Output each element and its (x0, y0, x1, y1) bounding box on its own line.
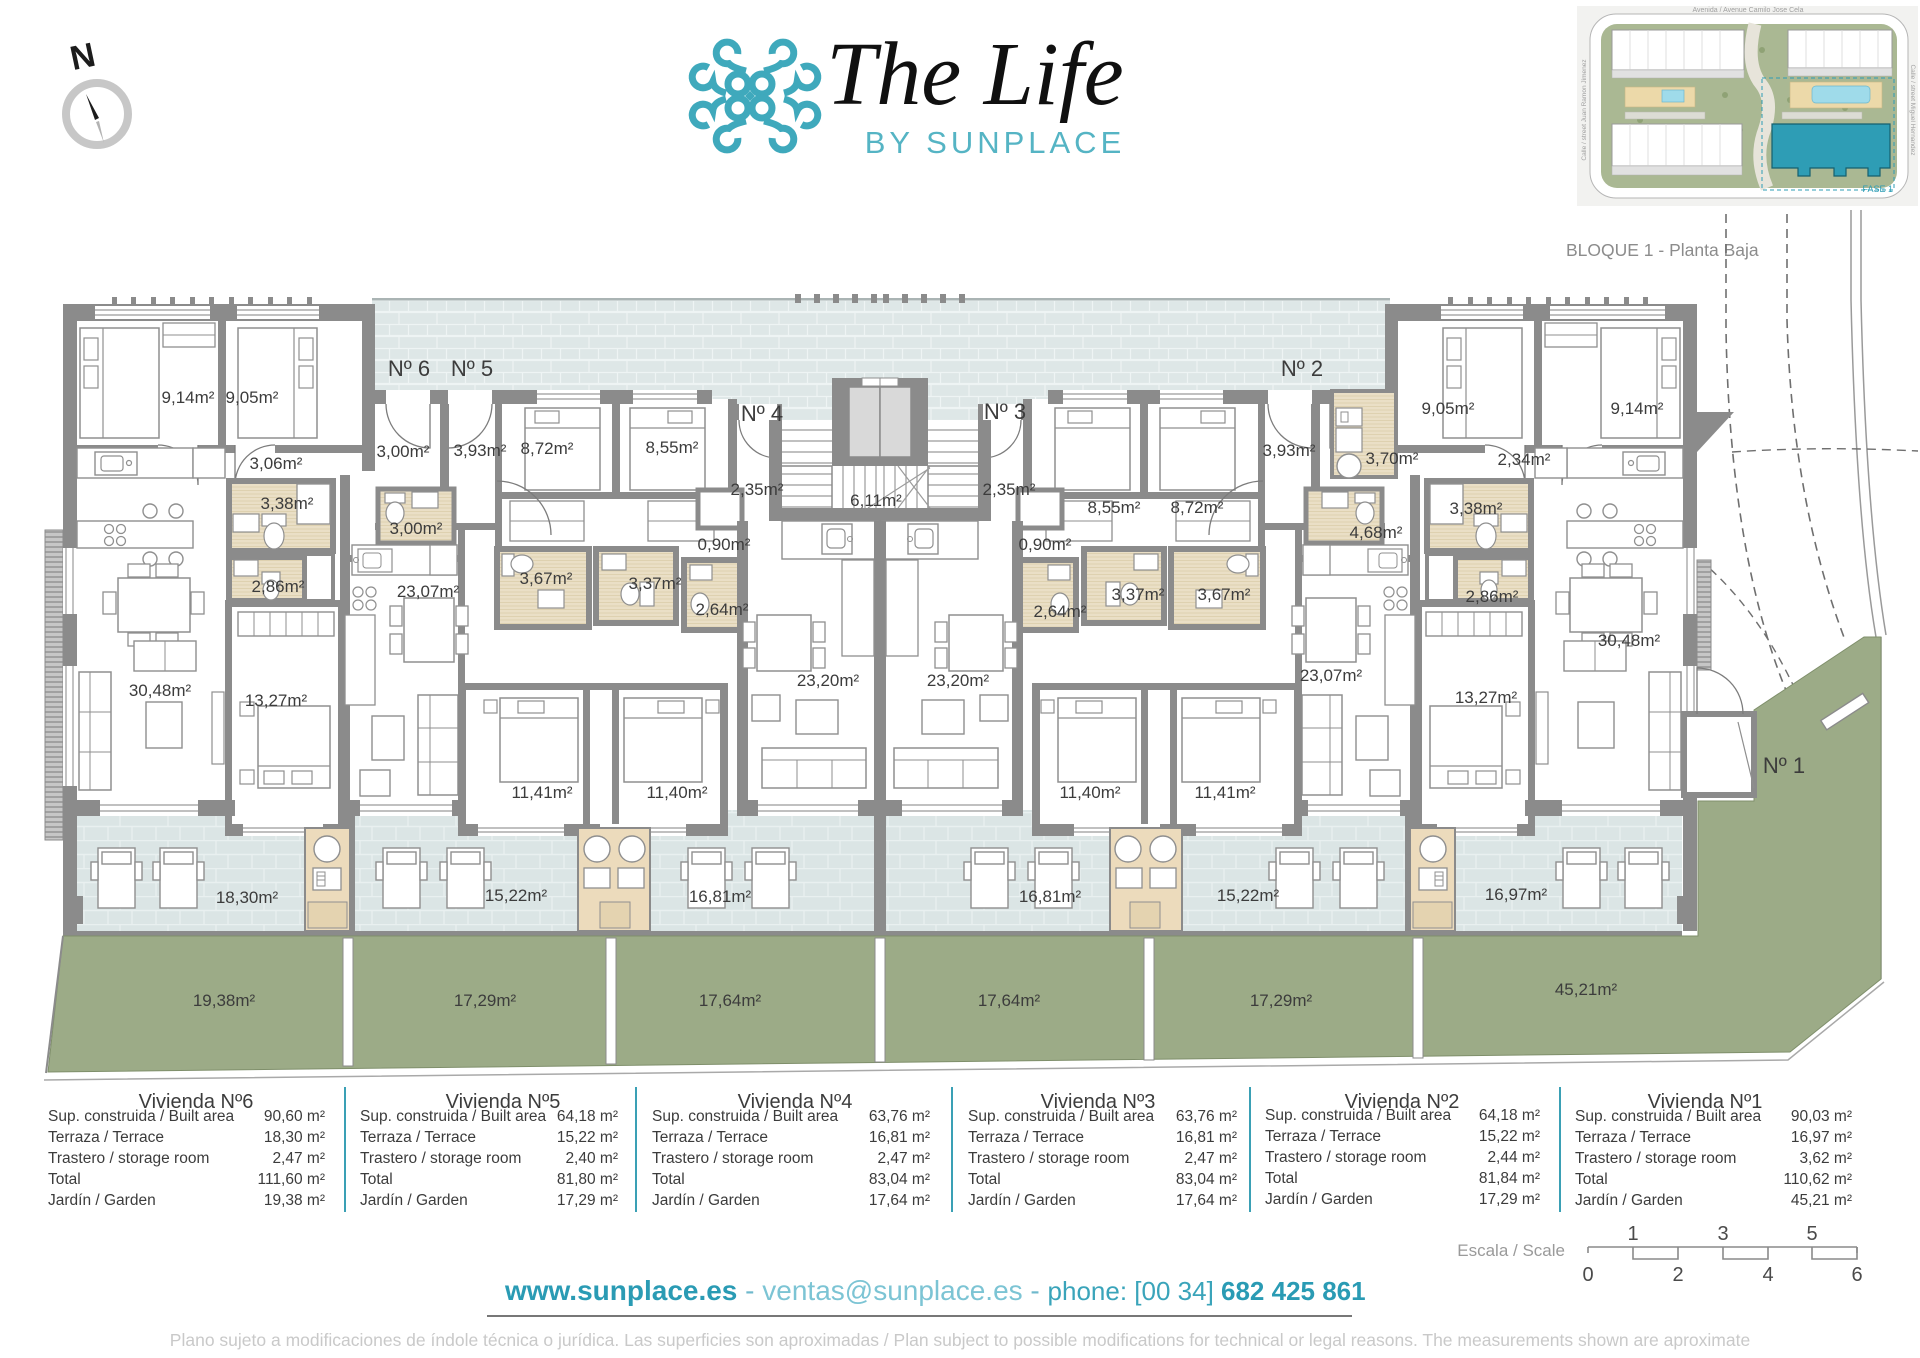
svg-text:6: 6 (1851, 1264, 1862, 1286)
svg-text:90,60 m²: 90,60 m² (264, 1108, 325, 1125)
svg-text:0,90m²: 0,90m² (1019, 535, 1072, 554)
svg-text:11,41m²: 11,41m² (1194, 783, 1255, 802)
svg-text:17,29m²: 17,29m² (1250, 991, 1313, 1010)
svg-text:11,40m²: 11,40m² (646, 783, 707, 802)
svg-text:8,72m²: 8,72m² (1171, 498, 1224, 517)
svg-text:17,29 m²: 17,29 m² (557, 1192, 618, 1209)
svg-text:64,18 m²: 64,18 m² (1479, 1107, 1540, 1124)
svg-text:Sup. construida / Built area: Sup. construida / Built area (1265, 1107, 1451, 1124)
svg-text:15,22m²: 15,22m² (1217, 886, 1280, 905)
svg-text:2,44 m²: 2,44 m² (1487, 1149, 1540, 1166)
svg-text:83,04 m²: 83,04 m² (869, 1171, 930, 1188)
svg-text:16,81m²: 16,81m² (1019, 887, 1082, 906)
svg-text:63,76 m²: 63,76 m² (869, 1108, 930, 1125)
svg-text:4,68m²: 4,68m² (1350, 523, 1403, 542)
svg-text:Escala / Scale: Escala / Scale (1457, 1241, 1565, 1260)
svg-text:16,97m²: 16,97m² (1485, 885, 1548, 904)
svg-text:Terraza / Terrace: Terraza / Terrace (360, 1129, 476, 1146)
svg-text:83,04 m²: 83,04 m² (1176, 1171, 1237, 1188)
svg-text:15,22m²: 15,22m² (485, 886, 548, 905)
svg-text:Jardín / Garden: Jardín / Garden (360, 1192, 468, 1209)
svg-text:Sup. construida / Built area: Sup. construida / Built area (1575, 1108, 1761, 1125)
svg-text:5: 5 (1806, 1223, 1817, 1245)
svg-text:16,81 m²: 16,81 m² (869, 1129, 930, 1146)
svg-text:9,14m²: 9,14m² (1611, 399, 1664, 418)
svg-text:Terraza / Terrace: Terraza / Terrace (652, 1129, 768, 1146)
svg-text:Terraza / Terrace: Terraza / Terrace (1575, 1129, 1691, 1146)
svg-text:2,64m²: 2,64m² (1034, 602, 1087, 621)
svg-text:Nº 2: Nº 2 (1281, 356, 1323, 381)
svg-text:4: 4 (1762, 1264, 1773, 1286)
svg-text:8,55m²: 8,55m² (1088, 498, 1141, 517)
svg-text:17,29m²: 17,29m² (454, 991, 517, 1010)
svg-text:23,20m²: 23,20m² (927, 671, 990, 690)
svg-text:45,21m²: 45,21m² (1555, 980, 1618, 999)
svg-text:81,84 m²: 81,84 m² (1479, 1170, 1540, 1187)
svg-text:2,35m²: 2,35m² (983, 480, 1036, 499)
svg-text:2,40 m²: 2,40 m² (565, 1150, 618, 1167)
svg-text:0: 0 (1582, 1264, 1593, 1286)
svg-text:81,80 m²: 81,80 m² (557, 1171, 618, 1188)
svg-text:23,07m²: 23,07m² (397, 582, 460, 601)
svg-text:Sup. construida / Built area: Sup. construida / Built area (48, 1108, 234, 1125)
svg-text:3,70m²: 3,70m² (1366, 449, 1419, 468)
svg-text:3,00m²: 3,00m² (390, 519, 443, 538)
svg-text:6,11m²: 6,11m² (850, 491, 902, 510)
svg-text:Terraza / Terrace: Terraza / Terrace (968, 1129, 1084, 1146)
svg-text:9,05m²: 9,05m² (1422, 399, 1475, 418)
svg-text:Plano sujeto a modificaciones: Plano sujeto a modificaciones de índole … (170, 1330, 1750, 1350)
svg-text:3,93m²: 3,93m² (1263, 441, 1316, 460)
svg-text:90,03 m²: 90,03 m² (1791, 1108, 1852, 1125)
svg-text:30,48m²: 30,48m² (129, 681, 192, 700)
svg-text:Jardín / Garden: Jardín / Garden (1265, 1191, 1373, 1208)
svg-text:23,07m²: 23,07m² (1300, 666, 1363, 685)
svg-text:3,62 m²: 3,62 m² (1799, 1150, 1852, 1167)
svg-text:110,62 m²: 110,62 m² (1783, 1171, 1852, 1188)
svg-text:2,35m²: 2,35m² (731, 480, 784, 499)
svg-text:2,34m²: 2,34m² (1498, 450, 1551, 469)
svg-text:Trastero / storage room: Trastero / storage room (652, 1150, 813, 1167)
svg-text:2,86m²: 2,86m² (252, 577, 305, 596)
svg-text:Trastero / storage room: Trastero / storage room (48, 1150, 209, 1167)
svg-text:63,76 m²: 63,76 m² (1176, 1108, 1237, 1125)
svg-text:Sup. construida / Built area: Sup. construida / Built area (652, 1108, 838, 1125)
svg-text:13,27m²: 13,27m² (1455, 688, 1518, 707)
svg-text:15,22 m²: 15,22 m² (557, 1129, 618, 1146)
svg-text:3,06m²: 3,06m² (250, 454, 303, 473)
svg-text:3,37m²: 3,37m² (1112, 585, 1165, 604)
svg-text:0,90m²: 0,90m² (698, 535, 751, 554)
svg-text:18,30m²: 18,30m² (216, 888, 279, 907)
svg-text:16,81m²: 16,81m² (689, 887, 752, 906)
svg-text:Trastero / storage room: Trastero / storage room (1575, 1150, 1736, 1167)
svg-text:18,30 m²: 18,30 m² (264, 1129, 325, 1146)
svg-text:Sup. construida / Built area: Sup. construida / Built area (360, 1108, 546, 1125)
svg-text:3,93m²: 3,93m² (454, 441, 507, 460)
svg-text:3,00m²: 3,00m² (377, 442, 430, 461)
svg-text:The Life: The Life (826, 25, 1124, 124)
svg-text:Nº 3: Nº 3 (984, 399, 1026, 424)
svg-text:Total: Total (1265, 1170, 1298, 1187)
svg-text:Terraza / Terrace: Terraza / Terrace (1265, 1128, 1381, 1145)
svg-text:2,64m²: 2,64m² (696, 600, 749, 619)
svg-text:Jardín / Garden: Jardín / Garden (48, 1192, 156, 1209)
svg-text:19,38 m²: 19,38 m² (264, 1192, 325, 1209)
svg-text:Total: Total (968, 1171, 1001, 1188)
svg-text:BY SUNPLACE: BY SUNPLACE (865, 125, 1126, 160)
svg-text:17,29 m²: 17,29 m² (1479, 1191, 1540, 1208)
svg-text:13,27m²: 13,27m² (245, 691, 308, 710)
svg-text:3,67m²: 3,67m² (520, 569, 573, 588)
svg-text:16,81 m²: 16,81 m² (1176, 1129, 1237, 1146)
svg-text:Trastero / storage room: Trastero / storage room (968, 1150, 1129, 1167)
svg-text:3,38m²: 3,38m² (261, 494, 314, 513)
svg-text:Avenida / Avenue Camilo Jose C: Avenida / Avenue Camilo Jose Cela (1692, 7, 1803, 14)
svg-text:Total: Total (48, 1171, 81, 1188)
svg-text:1: 1 (1627, 1223, 1638, 1245)
svg-text:11,40m²: 11,40m² (1059, 783, 1120, 802)
svg-text:Jardín / Garden: Jardín / Garden (652, 1192, 760, 1209)
svg-text:17,64 m²: 17,64 m² (1176, 1192, 1237, 1209)
svg-text:Trastero / storage room: Trastero / storage room (1265, 1149, 1426, 1166)
svg-text:45,21 m²: 45,21 m² (1791, 1192, 1852, 1209)
svg-text:Calle / street Miguel Hernande: Calle / street Miguel Hernandez (1909, 64, 1916, 155)
svg-text:8,55m²: 8,55m² (646, 438, 699, 457)
svg-text:11,41m²: 11,41m² (511, 783, 572, 802)
svg-text:Terraza / Terrace: Terraza / Terrace (48, 1129, 164, 1146)
svg-text:2: 2 (1672, 1264, 1683, 1286)
svg-text:Jardín / Garden: Jardín / Garden (1575, 1192, 1683, 1209)
svg-text:2,47 m²: 2,47 m² (877, 1150, 930, 1167)
svg-text:15,22 m²: 15,22 m² (1479, 1128, 1540, 1145)
svg-text:3,38m²: 3,38m² (1450, 499, 1503, 518)
svg-text:3: 3 (1717, 1223, 1728, 1245)
svg-text:2,86m²: 2,86m² (1466, 587, 1519, 606)
svg-text:FASE 1: FASE 1 (1862, 184, 1893, 194)
svg-text:Nº 1: Nº 1 (1763, 753, 1805, 778)
svg-text:Nº 6: Nº 6 (388, 356, 430, 381)
svg-text:Calle / street Juan Ramon Jime: Calle / street Juan Ramon Jimenez (1581, 59, 1588, 160)
svg-text:Sup. construida / Built area: Sup. construida / Built area (968, 1108, 1154, 1125)
svg-text:9,05m²: 9,05m² (226, 388, 279, 407)
svg-text:64,18 m²: 64,18 m² (557, 1108, 618, 1125)
svg-text:17,64 m²: 17,64 m² (869, 1192, 930, 1209)
svg-text:19,38m²: 19,38m² (193, 991, 256, 1010)
svg-text:BLOQUE 1 - Planta Baja: BLOQUE 1 - Planta Baja (1566, 240, 1759, 260)
svg-text:17,64m²: 17,64m² (978, 991, 1041, 1010)
svg-text:Jardín / Garden: Jardín / Garden (968, 1192, 1076, 1209)
svg-text:16,97 m²: 16,97 m² (1791, 1129, 1852, 1146)
svg-text:23,20m²: 23,20m² (797, 671, 860, 690)
svg-text:Total: Total (360, 1171, 393, 1188)
svg-text:2,47 m²: 2,47 m² (272, 1150, 325, 1167)
svg-text:111,60 m²: 111,60 m² (258, 1171, 326, 1188)
svg-text:www.sunplace.es - ventas@sun: www.sunplace.es - ventas@sunplace.es - p… (504, 1275, 1366, 1306)
svg-text:9,14m²: 9,14m² (162, 388, 215, 407)
svg-text:Nº 4: Nº 4 (741, 401, 783, 426)
svg-text:2,47 m²: 2,47 m² (1184, 1150, 1237, 1167)
svg-text:3,37m²: 3,37m² (629, 574, 682, 593)
svg-text:3,67m²: 3,67m² (1198, 585, 1251, 604)
svg-text:Total: Total (652, 1171, 685, 1188)
svg-text:30,48m²: 30,48m² (1598, 631, 1661, 650)
svg-text:17,64m²: 17,64m² (699, 991, 762, 1010)
svg-text:Trastero / storage room: Trastero / storage room (360, 1150, 521, 1167)
svg-text:8,72m²: 8,72m² (521, 439, 574, 458)
svg-text:Total: Total (1575, 1171, 1608, 1188)
svg-text:Nº 5: Nº 5 (451, 356, 493, 381)
